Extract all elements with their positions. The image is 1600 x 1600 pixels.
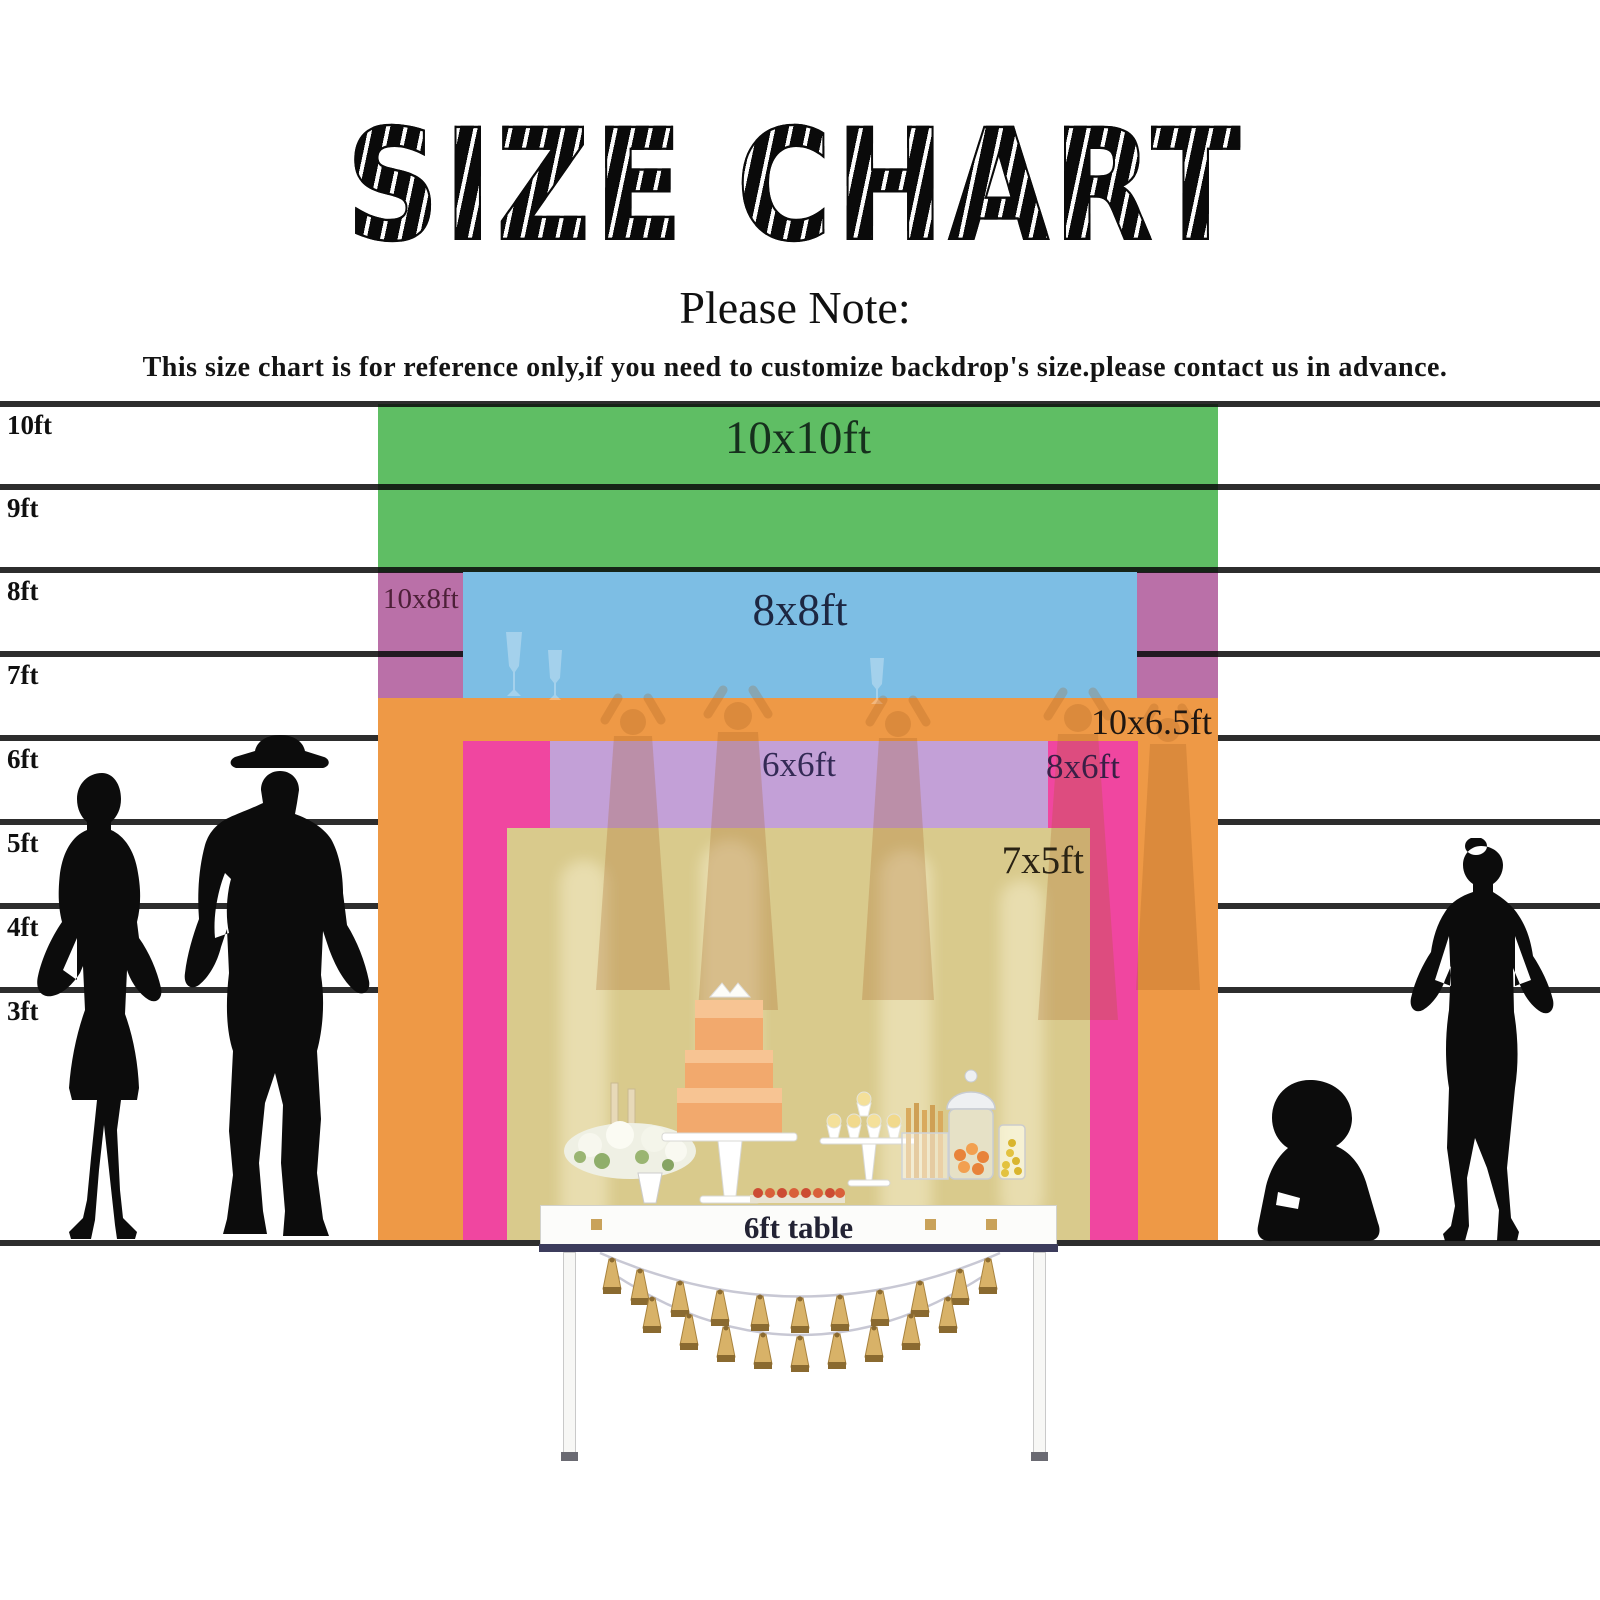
- backdrop-highlight: [700, 840, 760, 1090]
- size-chart-page: SIZE CHART Please Note: This size chart …: [0, 0, 1600, 1600]
- ruler-label-7ft: 7ft: [7, 660, 38, 691]
- ruler-label-9ft: 9ft: [7, 493, 38, 524]
- page-title: SIZE CHART: [0, 96, 1590, 275]
- banner-string: [600, 1253, 1000, 1297]
- backdrop-label-6x6ft: 6x6ft: [550, 745, 1048, 785]
- table-foot: [561, 1452, 578, 1461]
- banner-string: [615, 1275, 985, 1335]
- silhouette-man-hat: [183, 733, 378, 1243]
- silhouette-woman-right: [1403, 838, 1565, 1243]
- backdrop-label-10x6.5ft: 10x6.5ft: [1030, 701, 1212, 743]
- backdrop-label-7x5ft: 7x5ft: [898, 838, 1084, 883]
- reference-note: This size chart is for reference only,if…: [0, 352, 1590, 384]
- backdrop-label-10x8ft: 10x8ft: [383, 583, 459, 616]
- table-leg: [563, 1252, 576, 1453]
- ruler-line-9ft: [0, 484, 1600, 490]
- ruler-label-8ft: 8ft: [7, 576, 38, 607]
- tassel: [603, 1258, 997, 1334]
- backdrop-label-8x8ft: 8x8ft: [463, 584, 1137, 636]
- banner-garland: [540, 1245, 1060, 1415]
- tassel: [643, 1297, 957, 1373]
- table-leg: [1033, 1252, 1046, 1453]
- ruler-label-10ft: 10ft: [7, 410, 52, 441]
- please-note-heading: Please Note:: [0, 281, 1590, 334]
- silhouette-woman-left: [25, 770, 175, 1243]
- backdrop-label-10x10ft: 10x10ft: [378, 411, 1218, 465]
- table-foot: [1031, 1452, 1048, 1461]
- silhouette-child-sitting: [1248, 1078, 1388, 1243]
- backdrop-highlight: [560, 860, 608, 1230]
- backdrop-highlight: [880, 850, 932, 1230]
- backdrop-highlight: [1000, 880, 1044, 1220]
- table-label: 6ft table: [540, 1210, 1057, 1246]
- ruler-line-10ft: [0, 401, 1600, 407]
